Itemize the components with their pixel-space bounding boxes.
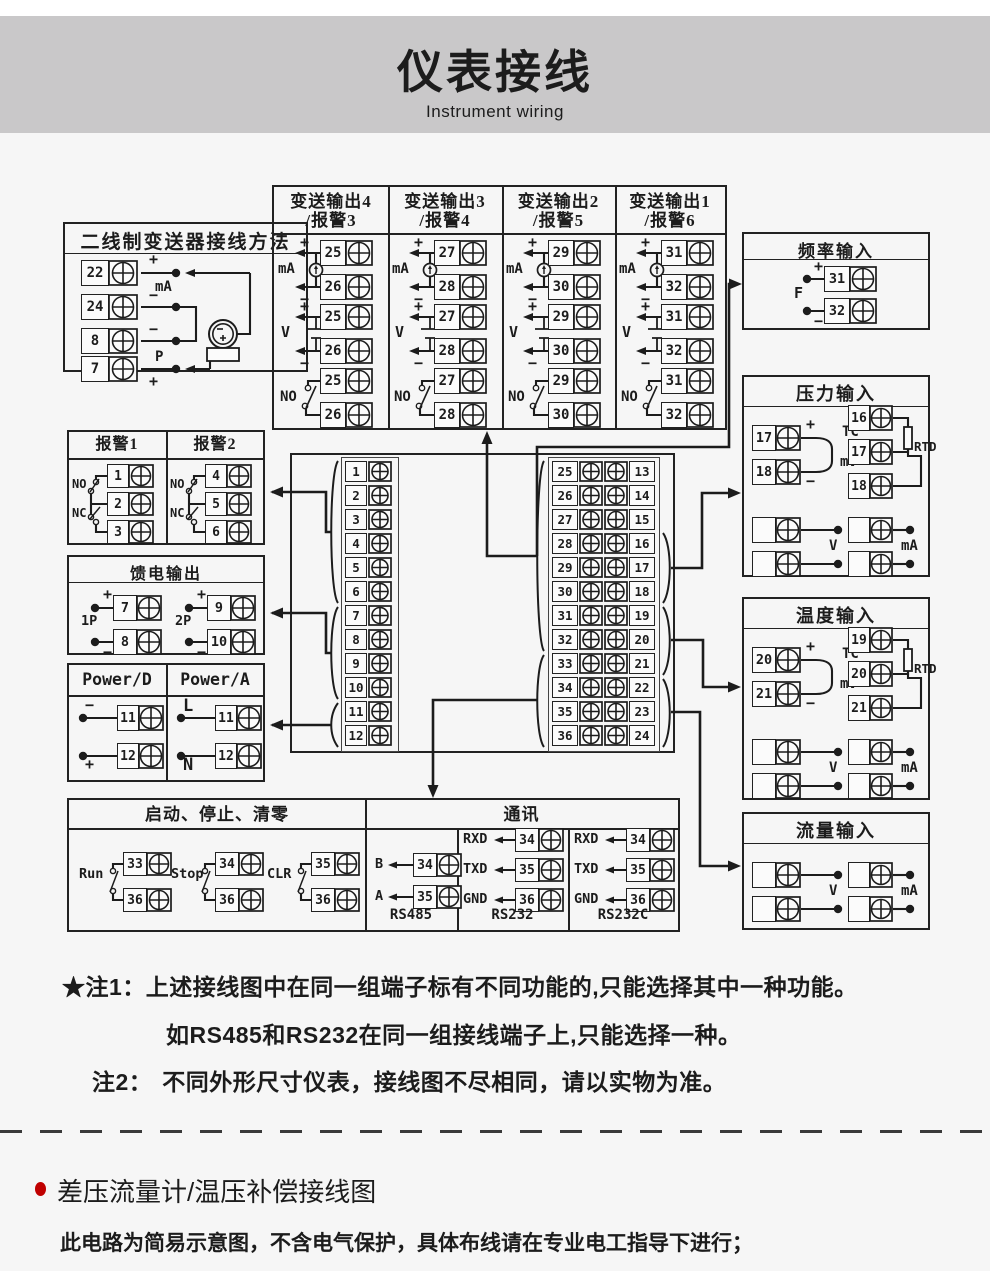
note-1: ★注1：上述接线图中在同一组端子标有不同功能的,只能选择其中一种功能。: [62, 968, 858, 1002]
dashed-divider: [0, 1130, 990, 1133]
instrument-wiring-page: 仪表接线 Instrument wiring 二线制变送器接线方法222487+…: [0, 0, 990, 1271]
section-heading: 差压流量计/温压补偿接线图: [57, 1172, 376, 1209]
wiring-overlay: [0, 0, 990, 960]
red-bullet-icon: [35, 1182, 46, 1196]
section-body: 此电路为简易示意图，不含电气保护，具体布线请在专业电工指导下进行；: [60, 1227, 753, 1257]
note-2: 注2：不同外形尺寸仪表，接线图不尽相同，请以实物为准。: [92, 1063, 726, 1097]
note-1-cont: 如RS485和RS232在同一组接线端子上,只能选择一种。: [166, 1016, 742, 1050]
